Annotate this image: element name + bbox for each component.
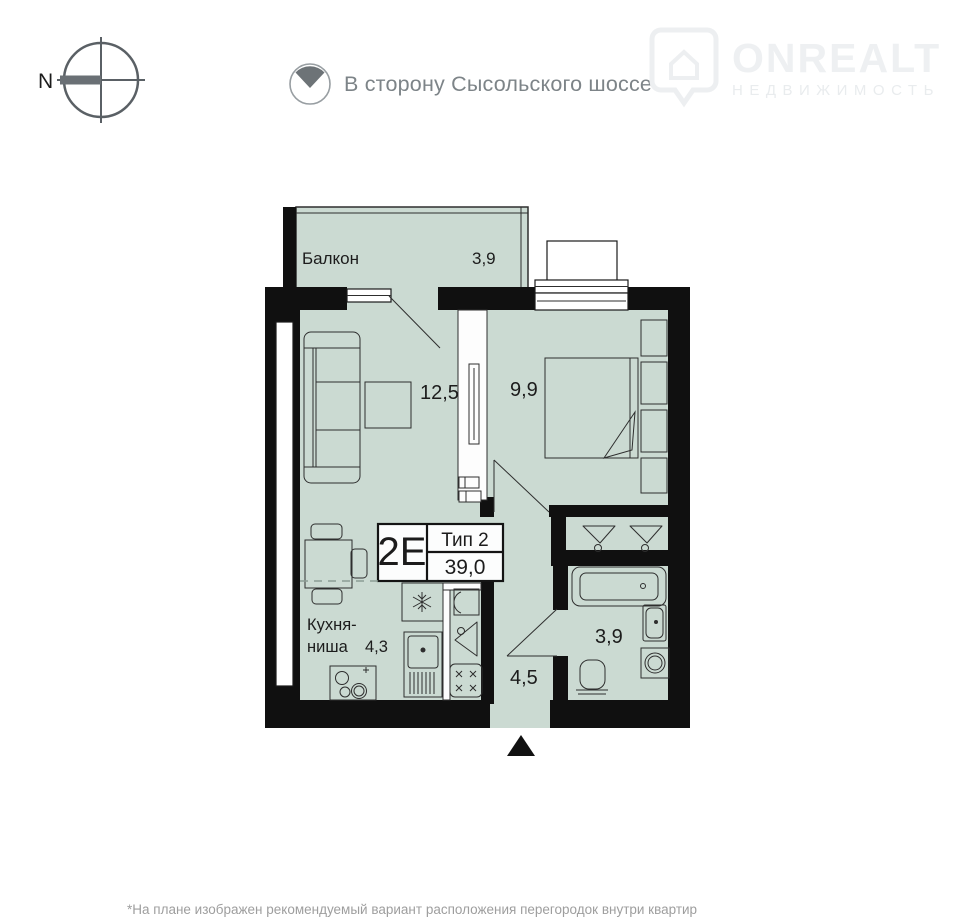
unit-label-box: 2Е Тип 2 39,0	[378, 524, 503, 581]
hall-area: 4,5	[510, 667, 538, 689]
floor-plan: 2Е Тип 2 39,0 Балкон 3,9 12,5 9,9 Кухня-…	[0, 0, 960, 910]
partition-door-leaf	[469, 364, 479, 444]
kitchen-area: 4,3	[365, 638, 388, 656]
unit-code: 2Е	[378, 530, 427, 574]
entrance-opening	[490, 700, 550, 728]
living-area: 12,5	[420, 382, 459, 404]
balcony-window	[347, 289, 391, 302]
bathroom-area: 3,9	[595, 626, 623, 648]
unit-total-area: 39,0	[445, 556, 486, 579]
unit-type: Тип 2	[441, 530, 489, 551]
bedroom-area: 9,9	[510, 379, 538, 401]
left-facade-window	[276, 322, 293, 686]
balcony-area: 3,9	[472, 249, 496, 268]
kitchen-label-line2: ниша	[307, 638, 349, 656]
kitchen-label-line1: Кухня-	[307, 616, 357, 634]
bedroom-window	[535, 241, 628, 310]
balcony-label: Балкон	[302, 249, 359, 268]
balcony-side-wall	[283, 207, 296, 290]
entrance-arrow-icon	[507, 735, 535, 756]
